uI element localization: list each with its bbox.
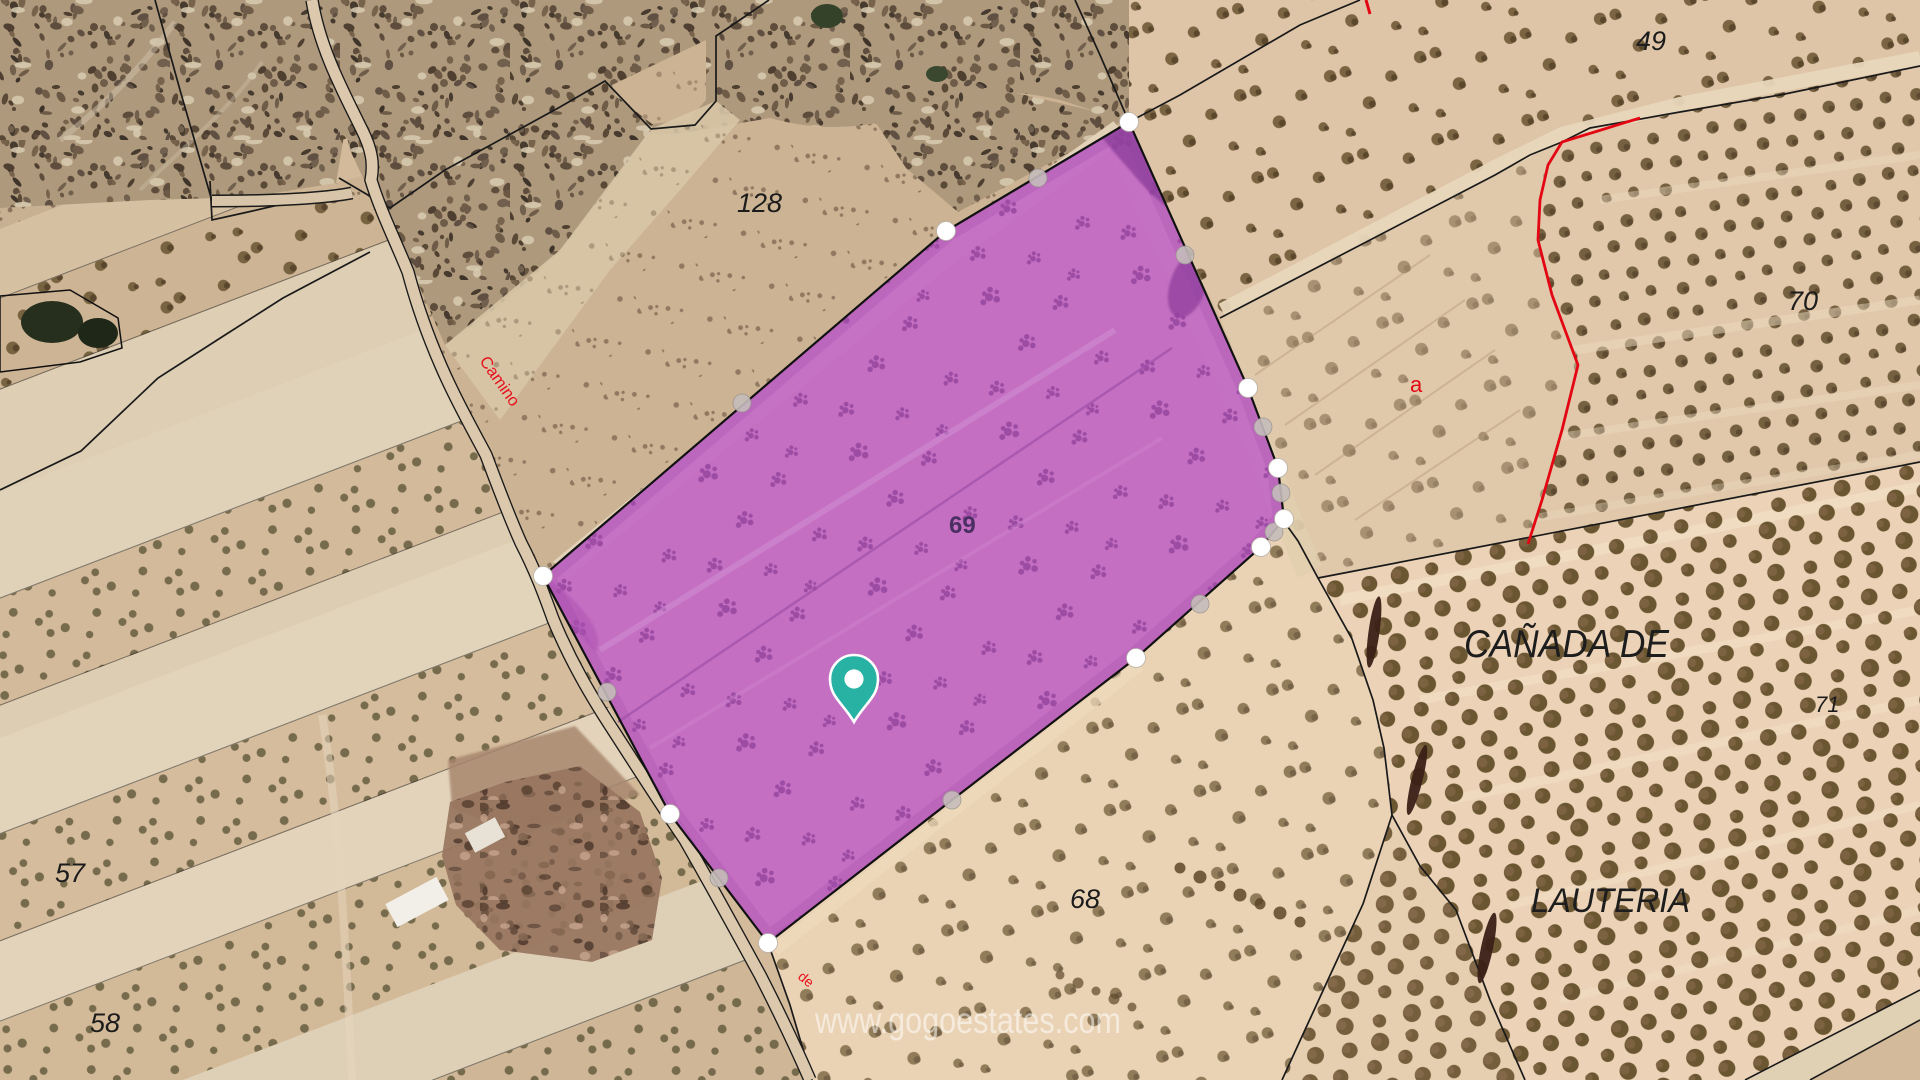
svg-text:a: a — [1410, 372, 1423, 397]
svg-text:68: 68 — [1070, 884, 1100, 914]
svg-text:69: 69 — [949, 512, 976, 539]
svg-text:57: 57 — [55, 858, 86, 888]
svg-text:128: 128 — [737, 188, 782, 218]
svg-text:www.gogoestates.com: www.gogoestates.com — [814, 1000, 1121, 1041]
svg-text:LAUTERIA: LAUTERIA — [1531, 882, 1690, 920]
svg-text:58: 58 — [90, 1008, 120, 1038]
svg-text:49: 49 — [1636, 26, 1666, 56]
svg-text:CAÑADA DE: CAÑADA DE — [1464, 623, 1670, 666]
svg-text:71: 71 — [1815, 692, 1839, 717]
svg-text:70: 70 — [1788, 286, 1818, 316]
